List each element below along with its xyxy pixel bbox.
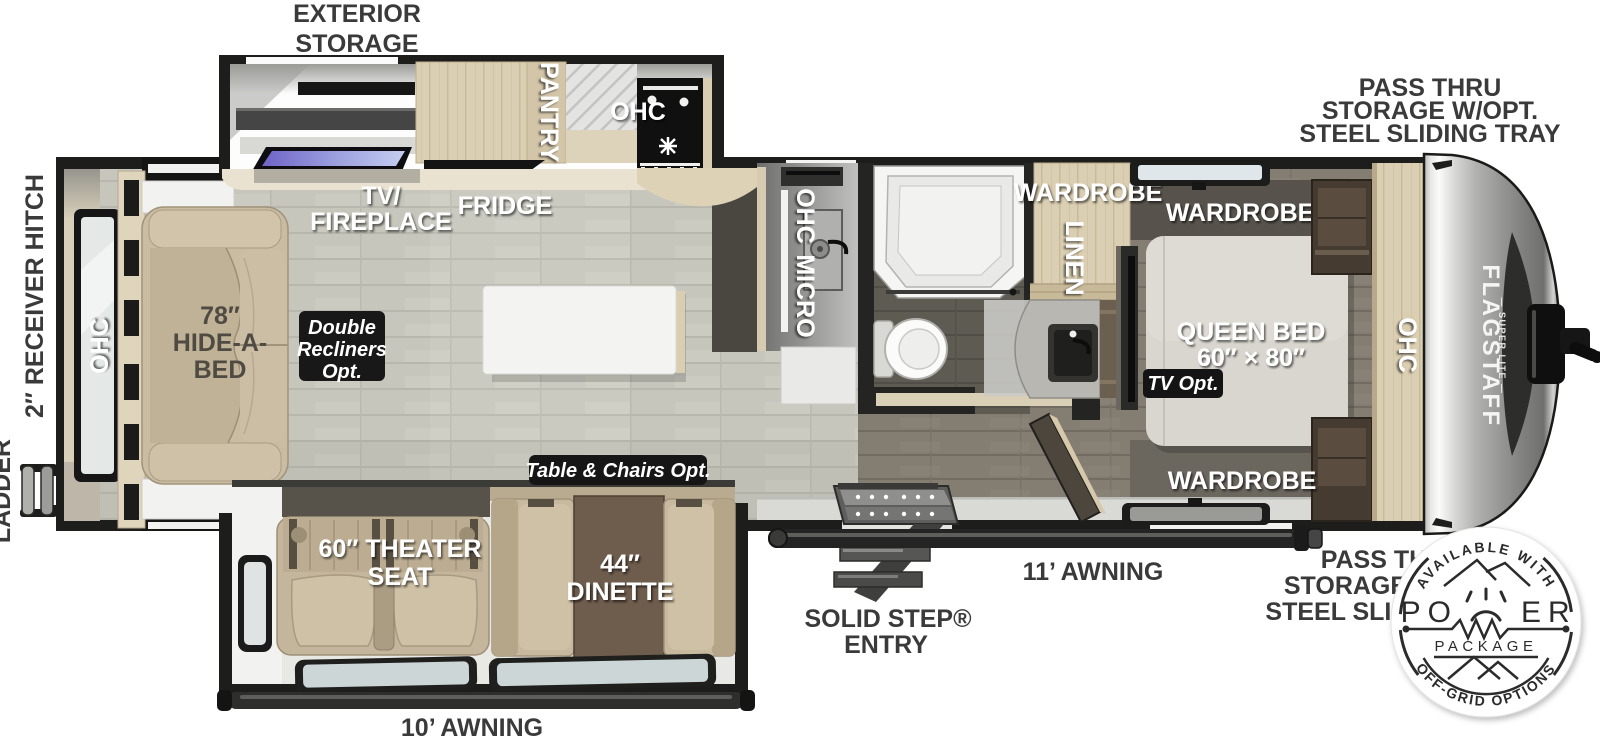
svg-text:TV/: TV/	[362, 182, 401, 210]
svg-text:PACKAGE: PACKAGE	[1435, 638, 1538, 655]
svg-text:Opt.: Opt.	[322, 361, 362, 383]
svg-text:78″: 78″	[200, 302, 240, 330]
svg-text:PO: PO	[1401, 596, 1458, 629]
svg-text:MICRO: MICRO	[791, 254, 819, 337]
svg-text:60″ THEATER: 60″ THEATER	[319, 535, 482, 563]
svg-text:10’ AWNING: 10’ AWNING	[401, 714, 543, 738]
svg-text:60″ × 80″: 60″ × 80″	[1197, 344, 1305, 372]
svg-text:11’ AWNING: 11’ AWNING	[1023, 558, 1164, 586]
svg-text:HIDE-A-: HIDE-A-	[173, 329, 267, 357]
svg-text:FRIDGE: FRIDGE	[458, 192, 552, 220]
svg-text:SEAT: SEAT	[368, 563, 433, 591]
svg-text:STEEL SLIDING TRAY: STEEL SLIDING TRAY	[1299, 120, 1560, 148]
svg-text:FIREPLACE: FIREPLACE	[310, 208, 452, 236]
svg-text:ER: ER	[1521, 596, 1577, 629]
svg-text:2″ RECEIVER HITCH: 2″ RECEIVER HITCH	[21, 174, 49, 418]
svg-text:WARDROBE: WARDROBE	[1166, 199, 1315, 227]
svg-text:DINETTE: DINETTE	[567, 578, 674, 606]
svg-text:OHC: OHC	[791, 188, 819, 244]
svg-text:QUEEN BED: QUEEN BED	[1177, 318, 1326, 346]
svg-text:Double: Double	[308, 317, 376, 339]
svg-text:ENTRY: ENTRY	[844, 631, 928, 659]
svg-text:Table & Chairs Opt.: Table & Chairs Opt.	[526, 460, 711, 482]
svg-text:LADDER: LADDER	[0, 439, 16, 543]
svg-text:EXTERIOR: EXTERIOR	[293, 0, 421, 28]
svg-text:LINEN: LINEN	[1060, 221, 1088, 296]
svg-text:— SUPER LITE —: — SUPER LITE —	[1497, 297, 1507, 394]
svg-text:BED: BED	[194, 356, 247, 384]
svg-text:TV Opt.: TV Opt.	[1147, 373, 1218, 395]
svg-text:44″: 44″	[600, 550, 640, 578]
svg-text:PANTRY: PANTRY	[535, 62, 563, 162]
svg-text:SOLID STEP®: SOLID STEP®	[804, 605, 972, 633]
svg-text:OHC: OHC	[86, 318, 114, 374]
svg-text:STORAGE: STORAGE	[295, 30, 418, 58]
svg-text:OHC: OHC	[610, 98, 666, 126]
svg-text:OHC: OHC	[1393, 317, 1421, 373]
svg-text:WARDROBE: WARDROBE	[1168, 467, 1317, 495]
svg-text:Recliners: Recliners	[297, 339, 387, 361]
